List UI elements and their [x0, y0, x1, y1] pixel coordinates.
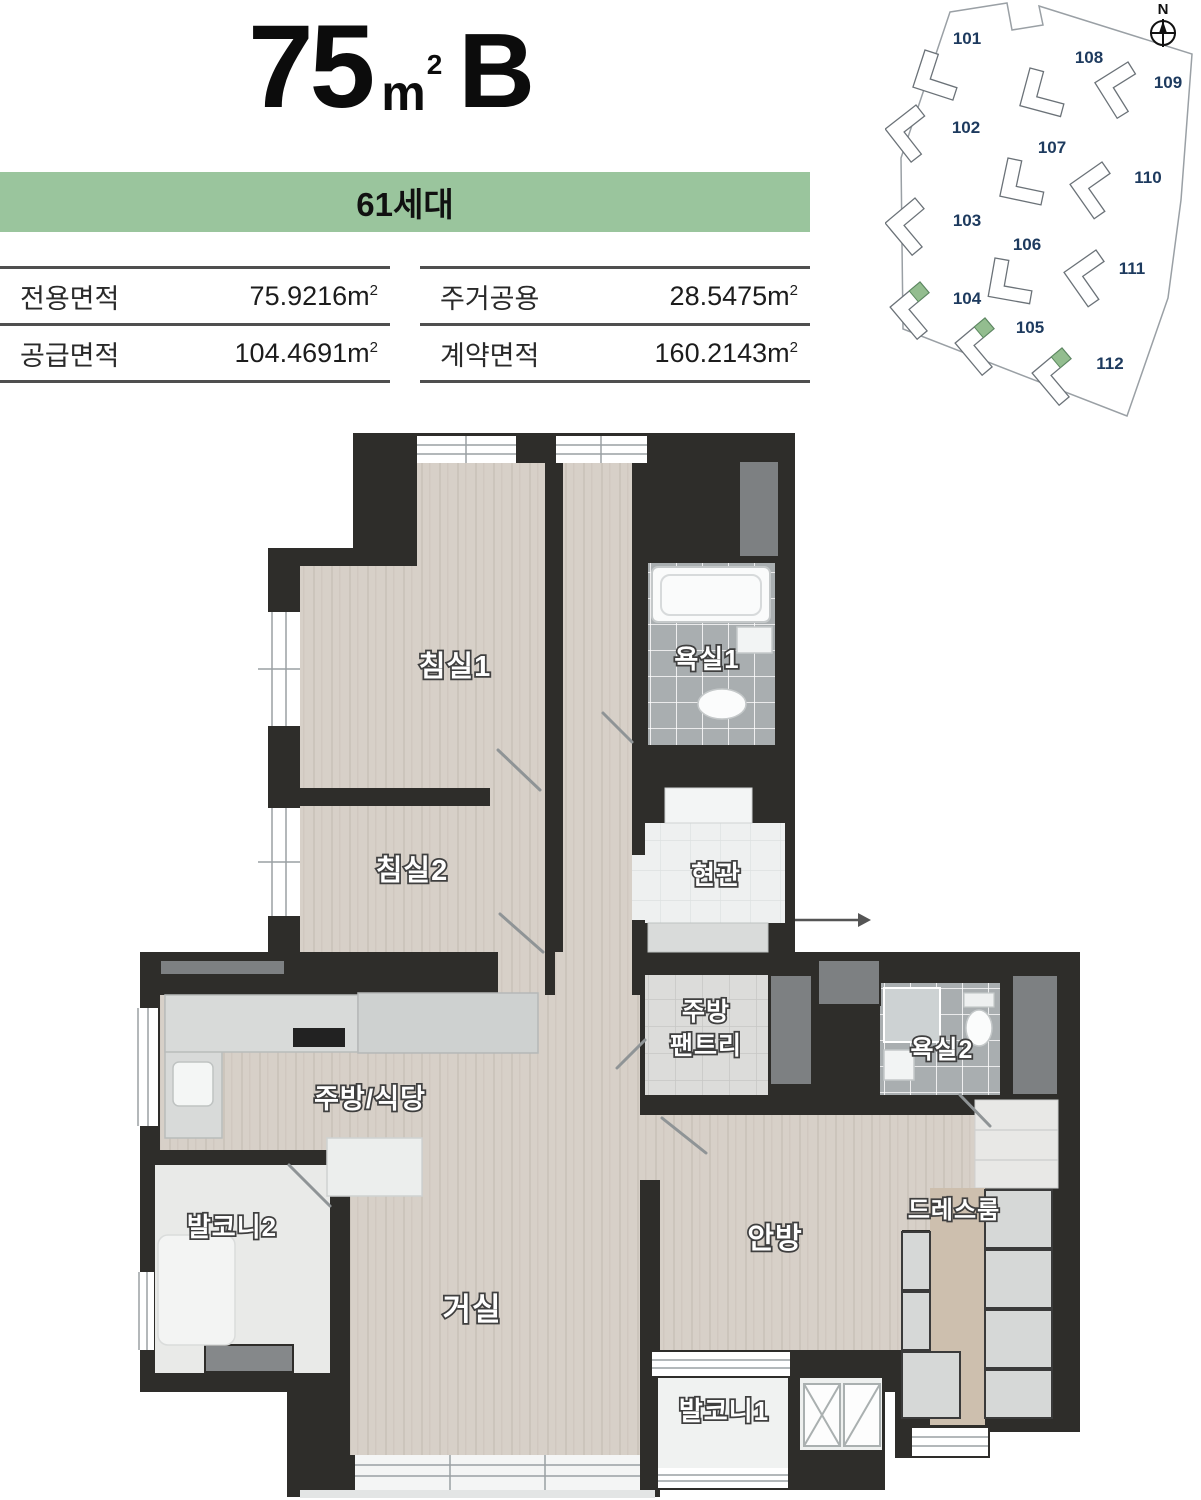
cooktop	[293, 1028, 345, 1047]
building-111	[1064, 250, 1120, 307]
building-label-103: 103	[953, 211, 981, 230]
building-107	[1000, 158, 1049, 205]
page-title: 75 m2 B	[248, 0, 533, 122]
building-103	[885, 198, 942, 255]
room-dressroom-counter	[975, 1100, 1058, 1188]
building-106	[988, 258, 1036, 304]
row-label: 전용면적	[20, 277, 119, 316]
building-109	[1095, 62, 1150, 118]
table-row: 주거공용 28.5475m2	[420, 269, 810, 326]
building-label-105: 105	[1016, 318, 1044, 337]
household-count-text: 61세대	[356, 178, 453, 226]
building-label-112: 112	[1096, 354, 1123, 373]
row-label: 주거공용	[440, 277, 539, 316]
island-table	[327, 1138, 422, 1196]
label-kitchen: 주방/식당	[314, 1084, 426, 1114]
svg-text:N: N	[1158, 1, 1169, 18]
entrance-direction-arrow-icon	[795, 913, 871, 927]
building-label-110: 110	[1134, 168, 1161, 187]
label-bedroom2: 침실2	[376, 854, 449, 887]
building-104	[890, 282, 947, 339]
area-table-left: 전용면적 75.9216m2 공급면적 104.4691m2	[0, 266, 390, 383]
label-balcony2: 발코니2	[187, 1212, 277, 1242]
page: 75 m2 B 61세대 전용면적 75.9216m2 공급면적 104.469…	[0, 0, 1201, 1500]
toilet1	[698, 689, 746, 719]
building-108	[1020, 68, 1071, 117]
building-102	[885, 105, 942, 162]
building-label-104: 104	[953, 289, 982, 308]
label-master: 안방	[747, 1222, 802, 1255]
building-101	[913, 50, 965, 100]
label-living: 거실	[442, 1292, 501, 1327]
kitchen-cabinet-row	[358, 993, 538, 1053]
building-105	[955, 318, 1012, 375]
floor-plan: 침실1 욕실1 침실2 현관 주방 팬트리 욕실2 주방/식당 발코니2 드레스…	[125, 425, 1085, 1500]
row-value: 160.2143m2	[655, 338, 798, 369]
sink1	[737, 627, 772, 653]
sink2	[884, 1050, 914, 1080]
row-label: 공급면적	[20, 334, 119, 373]
room-bedroom1	[417, 463, 545, 788]
table-row: 전용면적 75.9216m2	[0, 269, 390, 326]
label-entrance: 현관	[691, 860, 741, 890]
row-value: 104.4691m2	[235, 338, 378, 369]
row-value: 75.9216m2	[250, 281, 378, 312]
row-value: 28.5475m2	[670, 281, 798, 312]
label-dressroom: 드레스룸	[908, 1197, 1000, 1224]
row-label: 계약면적	[440, 334, 539, 373]
kitchen-sink	[173, 1062, 213, 1106]
title-unit: m2	[381, 68, 442, 118]
compass-rose-icon: N	[1150, 1, 1176, 47]
building-label-101: 101	[953, 29, 981, 48]
building-label-102: 102	[952, 118, 980, 137]
table-row: 계약면적 160.2143m2	[420, 326, 810, 383]
label-bath1: 욕실1	[674, 644, 739, 674]
building-label-106: 106	[1013, 235, 1041, 254]
label-bedroom1: 침실1	[419, 650, 492, 683]
site-map: N 101 108 109 102 107 110 103 106 111 10…	[885, 0, 1201, 420]
building-label-108: 108	[1075, 48, 1103, 67]
label-bath2: 욕실2	[911, 1036, 974, 1064]
label-pantry-2: 팬트리	[670, 1032, 742, 1060]
label-balcony1: 발코니1	[679, 1396, 769, 1426]
building-112	[1032, 348, 1089, 405]
household-count-banner: 61세대	[0, 172, 810, 232]
building-110	[1070, 162, 1126, 219]
area-table-right: 주거공용 28.5475m2 계약면적 160.2143m2	[420, 266, 810, 383]
room-master	[660, 1188, 902, 1350]
site-boundary	[901, 3, 1192, 416]
building-label-107: 107	[1038, 138, 1066, 157]
building-label-109: 109	[1154, 73, 1182, 92]
title-number: 75	[248, 13, 371, 122]
building-label-111: 111	[1119, 259, 1146, 278]
title-unit-sup: 2	[427, 49, 443, 80]
shower2	[884, 988, 940, 1042]
label-pantry-1: 주방	[682, 998, 730, 1026]
room-hall	[660, 1115, 975, 1188]
room-corridor	[563, 463, 632, 952]
table-row: 공급면적 104.4691m2	[0, 326, 390, 383]
title-type-letter: B	[458, 21, 533, 122]
